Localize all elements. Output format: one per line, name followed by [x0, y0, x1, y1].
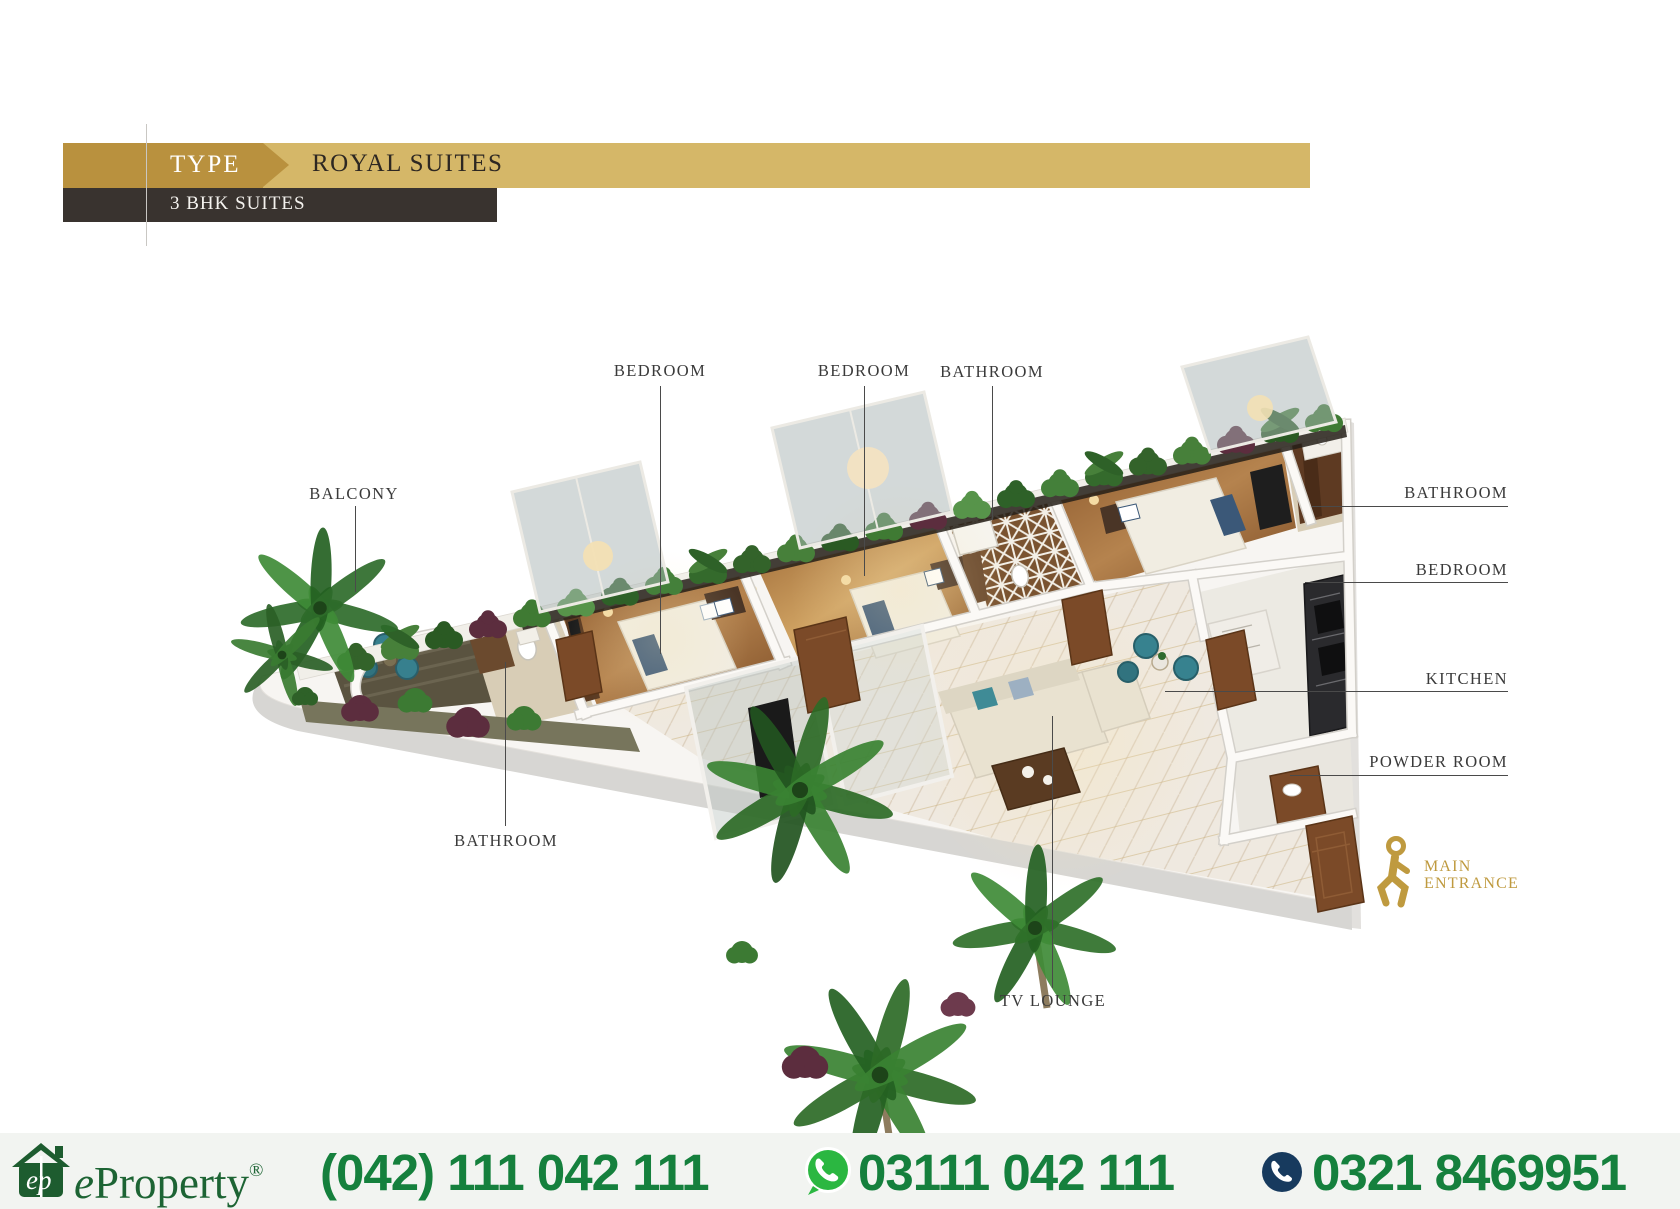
label-main-entrance: MAIN ENTRANCE — [1424, 858, 1519, 892]
label-bathroom-top: BATHROOM — [940, 362, 1044, 382]
main-entrance-line1: MAIN — [1424, 858, 1519, 875]
phone-landline: (042) 111 042 111 — [320, 1143, 709, 1202]
leader-bathroom-right — [1312, 506, 1508, 507]
leader-balcony — [355, 506, 356, 592]
label-bedroom-top-left: BEDROOM — [614, 361, 706, 381]
brand-wordmark: eProperty® — [74, 1146, 263, 1198]
label-balcony: BALCONY — [309, 484, 399, 504]
main-entrance-line2: ENTRANCE — [1424, 875, 1519, 892]
walking-person-icon — [1370, 836, 1418, 910]
leader-bedroom-top-mid — [864, 386, 865, 576]
phone-mobile: 0321 8469951 — [1312, 1143, 1626, 1202]
leader-kitchen — [1165, 691, 1508, 692]
phone-call-icon — [1261, 1151, 1303, 1193]
leader-bedroom-top-left — [660, 386, 661, 654]
brochure-page: TYPE ROYAL SUITES 3 BHK SUITES — [0, 0, 1680, 1209]
leader-tv-lounge — [1052, 716, 1053, 988]
label-kitchen: KITCHEN — [1426, 669, 1508, 689]
leader-bathroom-bottom — [505, 662, 506, 826]
label-bathroom-right: BATHROOM — [1404, 483, 1508, 503]
leader-bathroom-top — [992, 386, 993, 520]
floorplan-3d-render — [0, 0, 1680, 1209]
phone-whatsapp: 03111 042 111 — [858, 1143, 1174, 1202]
brand-e: e — [74, 1158, 94, 1208]
label-tv-lounge: TV LOUNGE — [1000, 991, 1106, 1011]
leader-bedroom-right — [1305, 582, 1508, 583]
label-bedroom-top-mid: BEDROOM — [818, 361, 910, 381]
whatsapp-icon — [803, 1146, 853, 1196]
label-bedroom-right: BEDROOM — [1416, 560, 1508, 580]
leader-powder-room — [1290, 775, 1508, 776]
brand-rest: Property — [94, 1158, 249, 1208]
logo-monogram: ep — [26, 1165, 51, 1195]
label-bathroom-bottom: BATHROOM — [454, 831, 558, 851]
label-powder-room: POWDER ROOM — [1369, 752, 1508, 772]
eproperty-logo-icon: ep — [10, 1140, 72, 1198]
registered-mark: ® — [249, 1160, 263, 1181]
